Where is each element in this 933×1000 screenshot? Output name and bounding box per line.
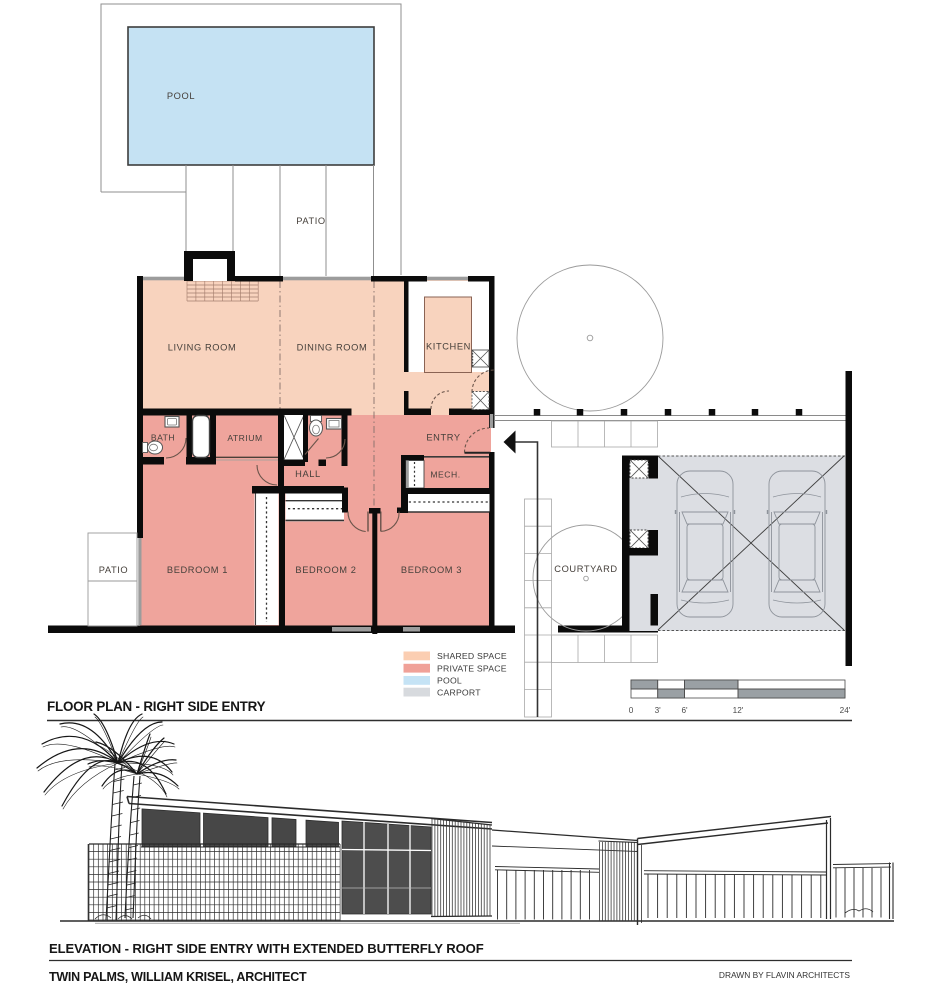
svg-text:TWIN PALMS, WILLIAM KRISEL, AR: TWIN PALMS, WILLIAM KRISEL, ARCHITECT — [49, 970, 307, 984]
svg-text:12': 12' — [733, 706, 744, 715]
svg-text:ATRIUM: ATRIUM — [227, 433, 262, 443]
svg-text:FLOOR PLAN - RIGHT SIDE ENTRY: FLOOR PLAN - RIGHT SIDE ENTRY — [47, 699, 266, 714]
svg-text:24': 24' — [840, 706, 851, 715]
svg-text:BEDROOM 3: BEDROOM 3 — [401, 565, 462, 575]
svg-text:PATIO: PATIO — [296, 216, 326, 226]
svg-text:3': 3' — [655, 706, 662, 715]
svg-text:POOL: POOL — [167, 91, 195, 101]
svg-text:DRAWN BY FLAVIN ARCHITECTS: DRAWN BY FLAVIN ARCHITECTS — [719, 970, 850, 980]
svg-text:POOL: POOL — [437, 676, 462, 686]
svg-text:DINING ROOM: DINING ROOM — [297, 343, 368, 353]
svg-text:6': 6' — [681, 706, 688, 715]
svg-text:LIVING ROOM: LIVING ROOM — [168, 343, 237, 353]
svg-text:PATIO: PATIO — [99, 565, 129, 575]
svg-text:MECH.: MECH. — [430, 470, 460, 480]
svg-text:BEDROOM 1: BEDROOM 1 — [167, 565, 228, 575]
svg-text:BATH: BATH — [151, 433, 175, 443]
svg-text:ELEVATION - RIGHT SIDE ENTRY W: ELEVATION - RIGHT SIDE ENTRY WITH EXTEND… — [49, 941, 484, 956]
svg-text:SHARED SPACE: SHARED SPACE — [437, 651, 507, 661]
svg-text:KITCHEN: KITCHEN — [426, 342, 471, 352]
svg-text:PRIVATE SPACE: PRIVATE SPACE — [437, 663, 507, 673]
svg-text:HALL: HALL — [295, 469, 321, 479]
svg-text:CARPORT: CARPORT — [437, 687, 481, 697]
svg-text:0: 0 — [629, 706, 634, 715]
svg-text:BEDROOM 2: BEDROOM 2 — [295, 565, 356, 575]
svg-text:COURTYARD: COURTYARD — [554, 564, 617, 574]
svg-text:ENTRY: ENTRY — [426, 433, 460, 443]
